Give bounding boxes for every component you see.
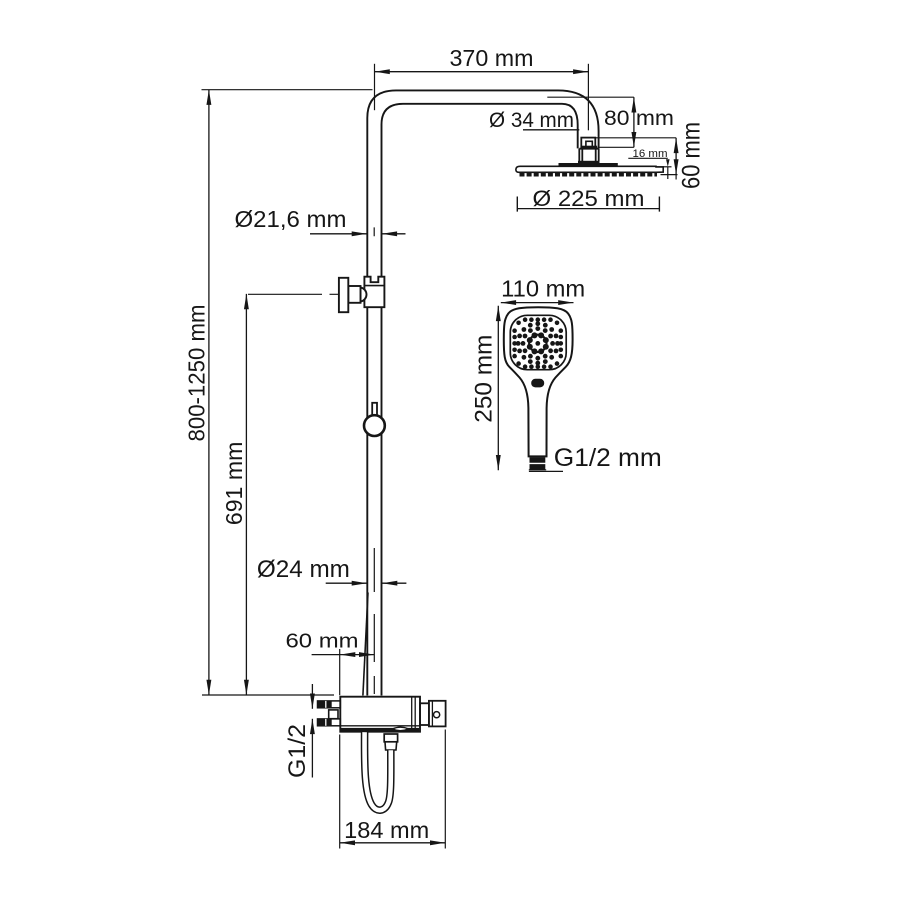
- svg-text:Ø 34 mm: Ø 34 mm: [489, 109, 574, 132]
- svg-text:Ø24 mm: Ø24 mm: [257, 556, 350, 583]
- svg-text:370 mm: 370 mm: [450, 45, 534, 71]
- svg-text:60 mm: 60 mm: [286, 630, 359, 653]
- svg-text:184 mm: 184 mm: [344, 817, 429, 843]
- svg-text:G1/2: G1/2: [284, 724, 311, 778]
- svg-text:60 mm: 60 mm: [678, 122, 706, 189]
- svg-text:691 mm: 691 mm: [221, 442, 247, 526]
- svg-text:16 mm: 16 mm: [633, 148, 668, 160]
- svg-text:Ø 225 mm: Ø 225 mm: [533, 186, 645, 211]
- svg-text:G1/2 mm: G1/2 mm: [554, 444, 662, 472]
- svg-text:250 mm: 250 mm: [470, 335, 497, 423]
- svg-text:Ø21,6 mm: Ø21,6 mm: [235, 206, 347, 232]
- svg-text:80 mm: 80 mm: [604, 107, 674, 130]
- svg-text:110 mm: 110 mm: [501, 275, 585, 301]
- svg-text:800-1250 mm: 800-1250 mm: [183, 305, 209, 442]
